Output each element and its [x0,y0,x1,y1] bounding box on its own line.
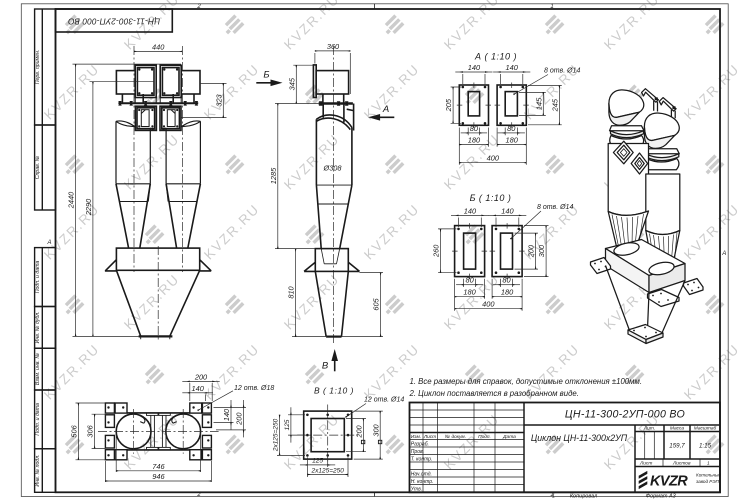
svg-text:200: 200 [527,244,536,258]
svg-text:245: 245 [551,98,560,112]
svg-text:Н. контр.: Н. контр. [411,479,434,485]
svg-text:Т. контр.: Т. контр. [411,456,433,462]
svg-text:А: А [46,240,51,246]
svg-text:200: 200 [194,372,208,381]
svg-text:Подп. и дата: Подп. и дата [35,403,41,436]
svg-text:300: 300 [537,244,546,257]
svg-text:140: 140 [222,408,231,421]
svg-text:80: 80 [465,276,474,285]
svg-text:Формат А3: Формат А3 [646,494,677,500]
svg-text:А ( 1:10 ): А ( 1:10 ) [474,52,517,62]
svg-text:KVZR: KVZR [650,474,688,490]
svg-text:1. Все размеры для справок, до: 1. Все размеры для справок, допустимые о… [410,377,643,386]
svg-text:В ( 1:10 ): В ( 1:10 ) [314,386,354,396]
svg-text:Подп. и дата: Подп. и дата [35,261,41,294]
svg-text:140: 140 [464,206,477,215]
svg-text:Дата: Дата [502,434,516,440]
svg-text:В: В [322,361,329,372]
svg-text:200: 200 [235,412,244,426]
svg-text:Ø308: Ø308 [322,164,342,173]
svg-text:125: 125 [284,419,291,430]
svg-text:Инв. № дубл.: Инв. № дубл. [35,311,41,343]
svg-text:Пров.: Пров. [411,449,424,455]
svg-text:1: 1 [552,494,555,500]
svg-text:2х125=250: 2х125=250 [273,418,280,452]
svg-text:145: 145 [534,97,543,110]
svg-text:140: 140 [192,384,205,393]
svg-text:№ докум.: № докум. [445,434,466,440]
svg-text:2440: 2440 [67,191,76,209]
svg-text:810: 810 [287,285,296,298]
svg-text:400: 400 [487,154,500,163]
svg-text:605: 605 [372,297,381,310]
svg-text:260: 260 [432,244,441,258]
svg-text:Циклон ЦН-11-300х2УП: Циклон ЦН-11-300х2УП [531,433,628,443]
svg-text:12 отв. Ø14: 12 отв. Ø14 [364,397,404,404]
svg-text:Перв. примен.: Перв. примен. [35,50,41,84]
svg-text:Копировал: Копировал [570,494,597,500]
svg-text:Справ. №: Справ. № [35,155,41,179]
svg-text:2: 2 [196,492,201,498]
svg-text:1285: 1285 [269,167,278,184]
svg-text:746: 746 [152,462,165,471]
svg-text:Подп.: Подп. [478,434,491,440]
svg-text:Инв. № подл.: Инв. № подл. [35,454,41,486]
svg-text:180: 180 [501,288,514,297]
svg-text:8 отв. Ø14: 8 отв. Ø14 [544,68,580,75]
svg-text:А: А [382,104,389,115]
svg-text:180: 180 [468,136,481,145]
svg-text:1:15: 1:15 [699,443,712,450]
svg-text:ЦН-11-300-2УП-000 ВО: ЦН-11-300-2УП-000 ВО [67,16,160,25]
svg-text:2: 2 [196,4,201,10]
svg-text:2х125=250: 2х125=250 [311,468,345,475]
svg-text:506: 506 [70,424,79,437]
svg-text:200: 200 [355,424,364,438]
svg-text:Масштаб: Масштаб [694,426,717,432]
svg-text:Взам. инв. №: Взам. инв. № [35,353,41,385]
svg-text:Масса: Масса [670,426,685,432]
svg-text:80: 80 [502,276,511,285]
svg-text:Лист: Лист [639,461,652,467]
svg-text:125: 125 [312,457,323,464]
svg-text:Лит.: Лит. [643,426,655,432]
svg-text:345: 345 [287,77,296,90]
svg-text:159,7: 159,7 [669,443,685,450]
svg-text:946: 946 [152,472,165,481]
svg-text:Лист: Лист [423,434,436,440]
svg-text:Котельный: Котельный [696,472,721,478]
svg-text:180: 180 [463,288,476,297]
svg-text:8 отв. Ø14: 8 отв. Ø14 [537,204,573,211]
svg-text:140: 140 [468,63,481,72]
svg-text:1: 1 [550,4,553,10]
svg-text:Разраб.: Разраб. [411,441,429,447]
svg-text:Б ( 1:10 ): Б ( 1:10 ) [470,193,512,203]
svg-text:205: 205 [444,98,453,112]
svg-text:360: 360 [327,42,340,51]
svg-text:80: 80 [470,124,479,133]
svg-text:140: 140 [501,206,514,215]
svg-text:2290: 2290 [84,198,93,216]
svg-text:12 отв. Ø18: 12 отв. Ø18 [234,385,274,392]
svg-text:Б: Б [263,70,269,81]
svg-text:80: 80 [507,124,516,133]
svg-text:323: 323 [214,93,223,106]
svg-text:140: 140 [506,63,519,72]
svg-text:1: 1 [707,461,710,467]
svg-text:Листов: Листов [672,461,691,467]
svg-text:2. Циклон поставляется в разоб: 2. Циклон поставляется в разобранном вид… [409,389,579,398]
svg-text:180: 180 [506,136,519,145]
svg-text:440: 440 [152,42,165,51]
svg-text:300: 300 [371,423,380,436]
svg-text:А: А [721,251,726,257]
svg-text:306: 306 [86,424,95,437]
svg-text:ЦН-11-300-2УП-000 ВО: ЦН-11-300-2УП-000 ВО [565,409,685,421]
svg-text:Нач.отд.: Нач.отд. [411,471,432,477]
svg-text:400: 400 [482,300,495,309]
svg-text:Изм.: Изм. [411,434,421,440]
svg-text:завод РЭП: завод РЭП [695,479,720,484]
svg-text:Утв.: Утв. [411,486,422,492]
